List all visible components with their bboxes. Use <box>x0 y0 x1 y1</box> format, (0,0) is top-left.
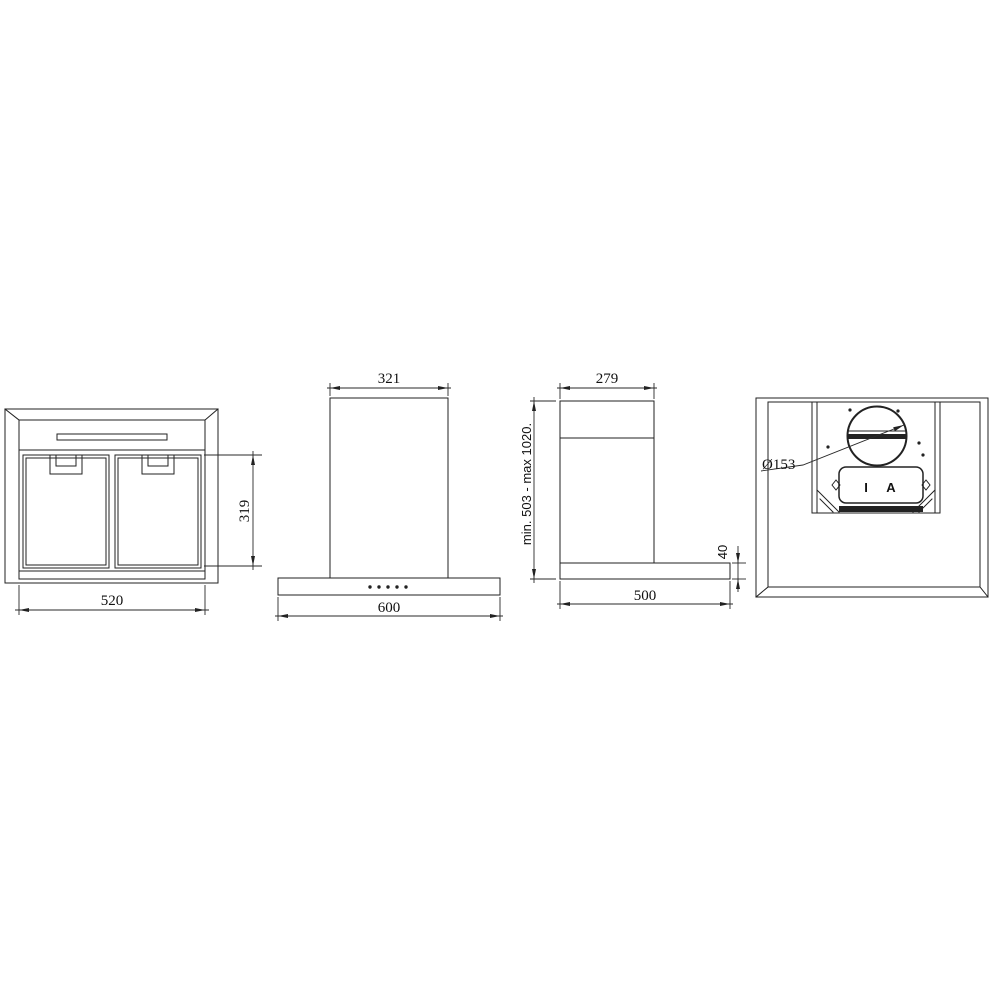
dim-text-diameter-153: Ø153 <box>762 457 795 473</box>
dim-text-500: 500 <box>634 588 657 604</box>
dim-text-279: 279 <box>596 371 619 387</box>
technical-drawing-canvas: 520 319 321 <box>0 0 1000 1000</box>
dimension-hood-width: 600 <box>275 597 503 621</box>
dimension-chimney-width: 321 <box>327 371 451 396</box>
view-front-panel: 520 319 <box>5 409 262 615</box>
dimension-front-panel-width: 520 <box>15 585 209 615</box>
plate-mark-right: A <box>886 480 896 495</box>
mounting-bar <box>839 506 923 512</box>
dimension-chimney-depth: 279 <box>557 371 657 399</box>
dim-text-600: 600 <box>378 600 401 616</box>
dimension-front-panel-height: 319 <box>204 451 262 570</box>
left-filter-door <box>23 455 109 568</box>
damper-flap <box>848 434 906 439</box>
dimension-hood-depth: 500 <box>557 581 733 609</box>
dim-text-321: 321 <box>378 371 401 387</box>
plate-mark-left: I <box>864 480 868 495</box>
control-buttons <box>368 585 407 588</box>
outlet-recess-box <box>812 402 940 513</box>
cooker-hood-dimension-drawing: 520 319 321 <box>0 0 1000 1000</box>
side-hood-body <box>560 563 730 579</box>
dim-text-height-range: min. 503 - max 1020. <box>519 423 534 545</box>
panel-outer-frame <box>5 409 218 583</box>
dim-text-520: 520 <box>101 593 124 609</box>
dim-text-40: 40 <box>715 545 730 559</box>
view-bottom: I A Ø153 <box>756 398 988 597</box>
dimension-overall-height: min. 503 - max 1020. <box>519 397 556 583</box>
view-front: 321 600 <box>275 371 503 621</box>
screw-holes <box>826 408 924 456</box>
right-filter-door <box>115 455 201 568</box>
canopy-outer-frame <box>756 398 988 597</box>
side-chimney <box>560 401 654 563</box>
view-side: 279 500 min. 503 - max 1020. 40 <box>519 371 746 609</box>
vent-slot <box>57 434 167 440</box>
dim-text-319: 319 <box>237 500 253 523</box>
front-chimney <box>330 398 448 578</box>
junction-plate: I A <box>832 467 930 503</box>
